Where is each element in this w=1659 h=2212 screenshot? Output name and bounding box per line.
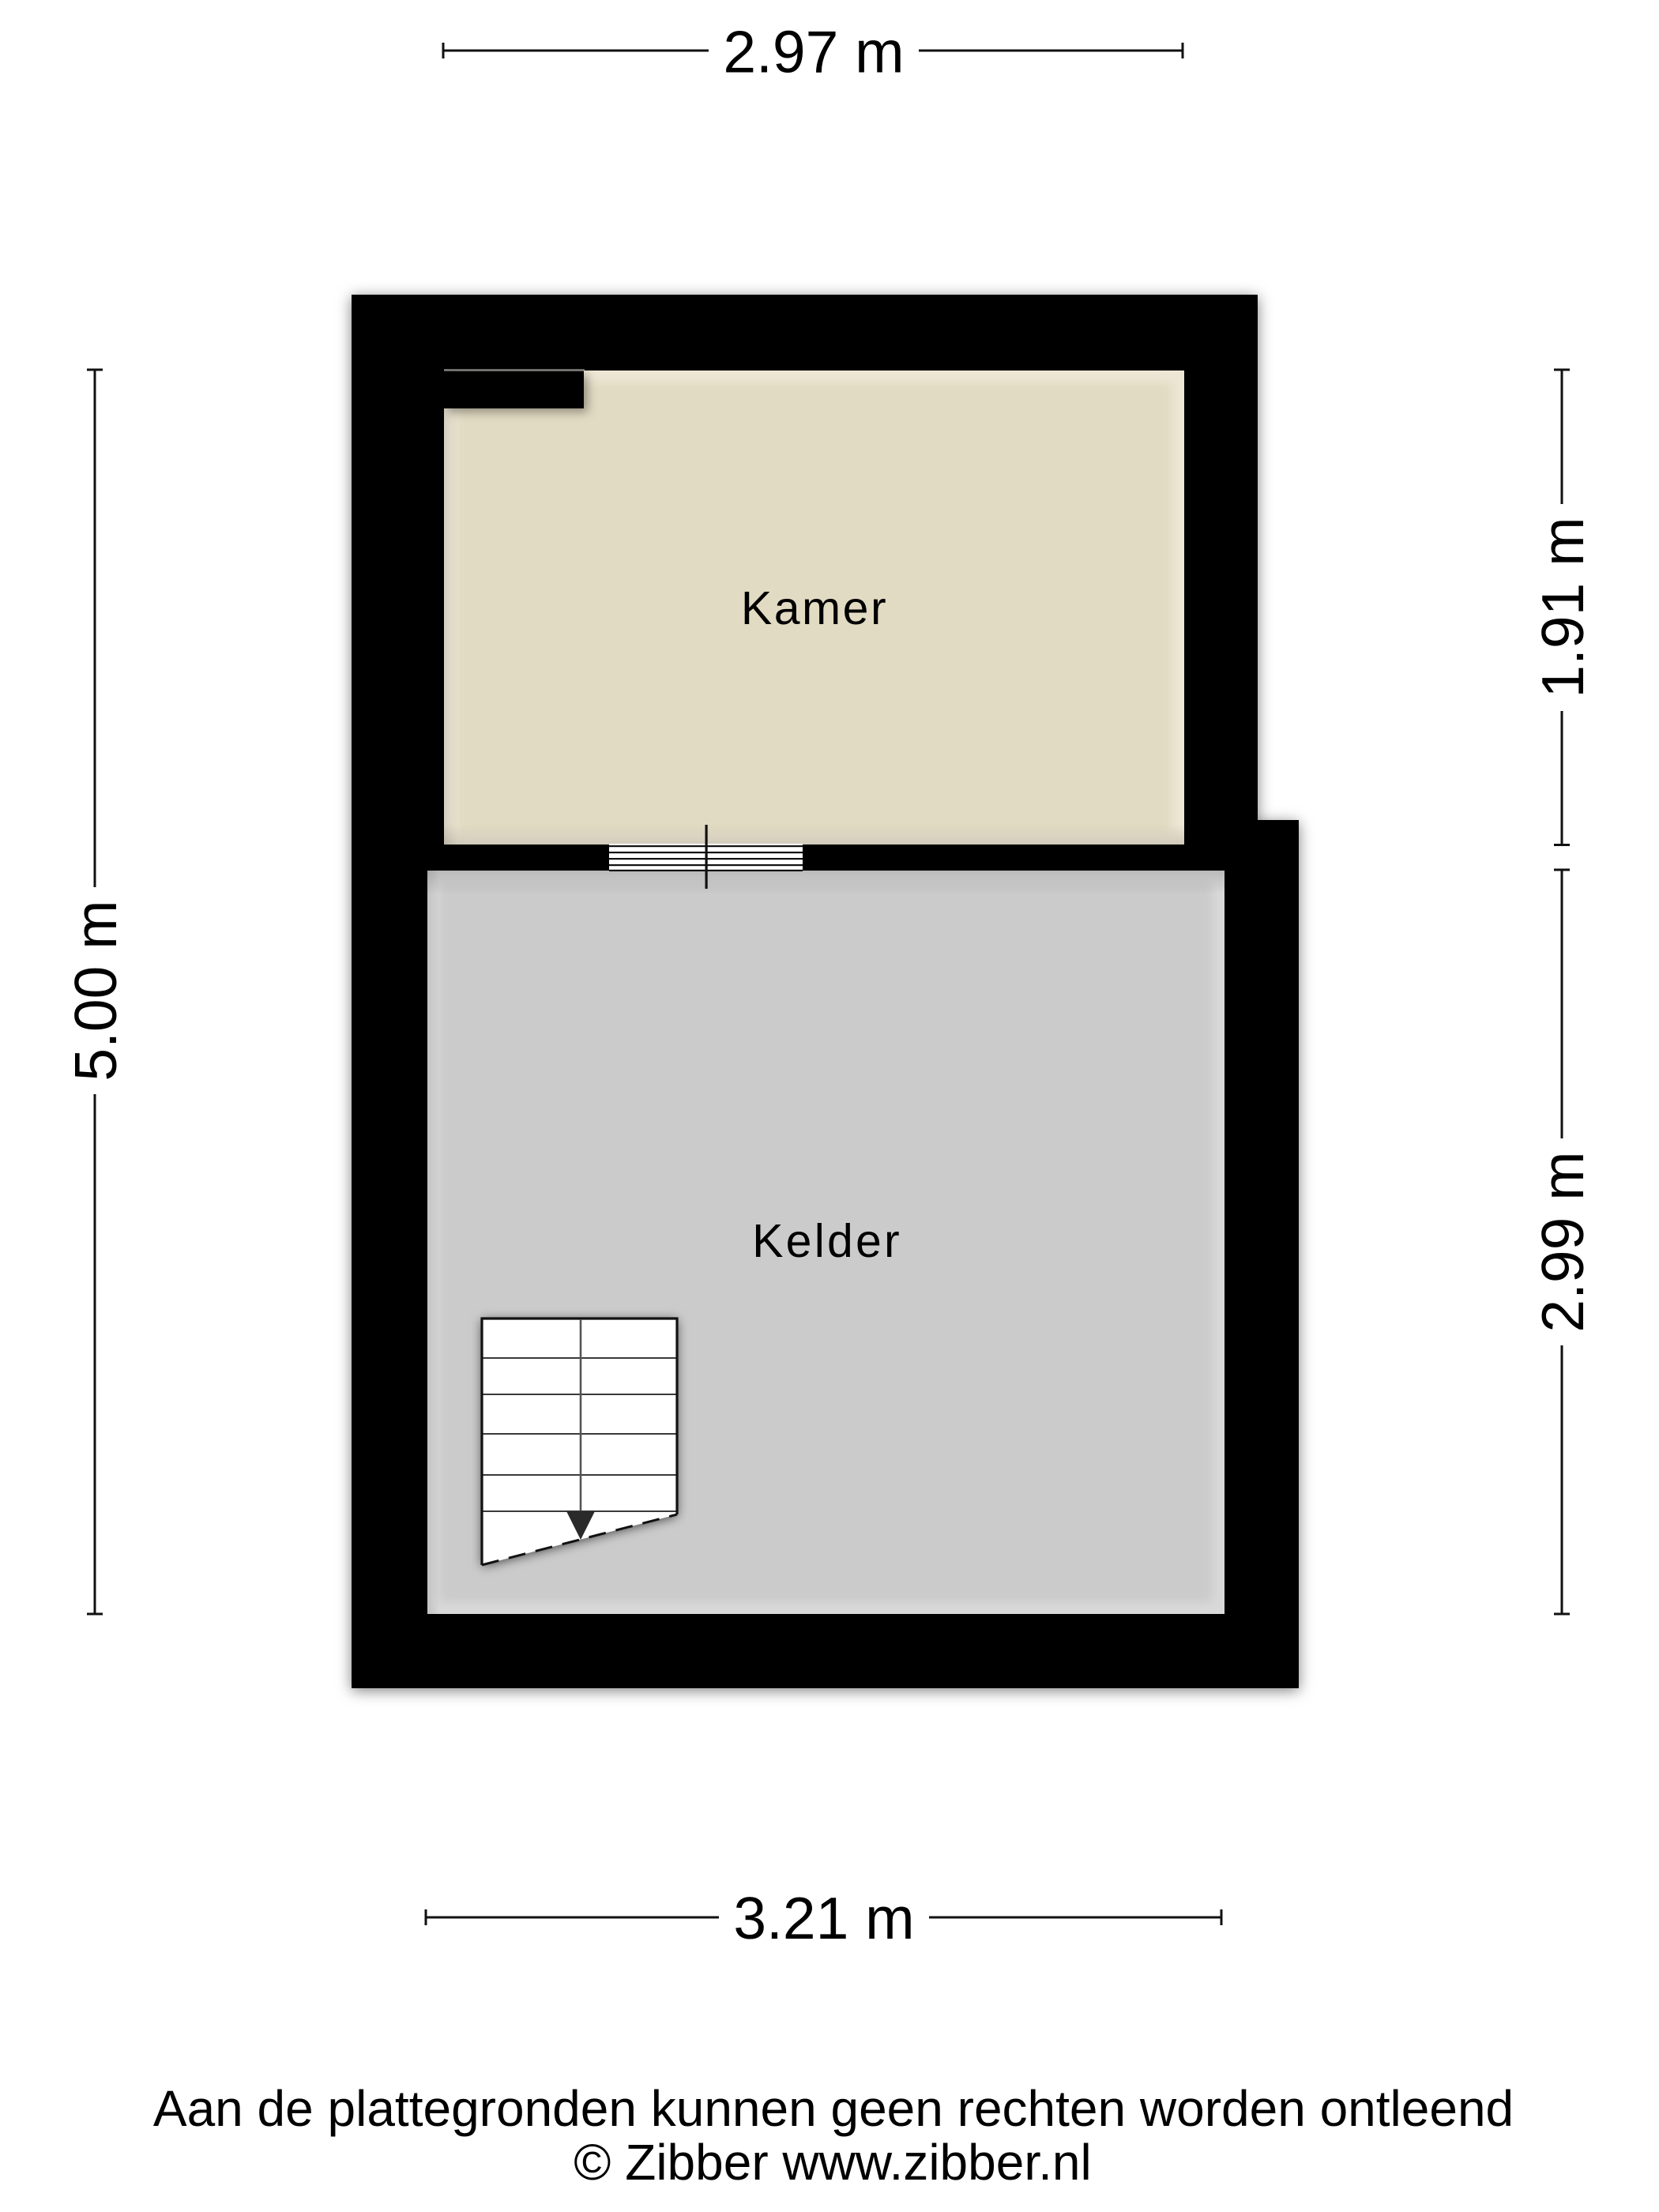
svg-text:3.21 m: 3.21 m xyxy=(733,1885,914,1951)
svg-text:Aan de plattegronden kunnen ge: Aan de plattegronden kunnen geen rechten… xyxy=(153,2080,1514,2137)
svg-text:Kelder: Kelder xyxy=(752,1215,902,1267)
svg-text:2.99 m: 2.99 m xyxy=(1529,1151,1596,1332)
svg-text:1.91 m: 1.91 m xyxy=(1529,517,1596,698)
svg-text:Kamer: Kamer xyxy=(741,582,888,634)
svg-text:© Zibber www.zibber.nl: © Zibber www.zibber.nl xyxy=(574,2134,1091,2191)
svg-text:5.00 m: 5.00 m xyxy=(62,900,129,1081)
svg-text:2.97 m: 2.97 m xyxy=(723,19,904,85)
